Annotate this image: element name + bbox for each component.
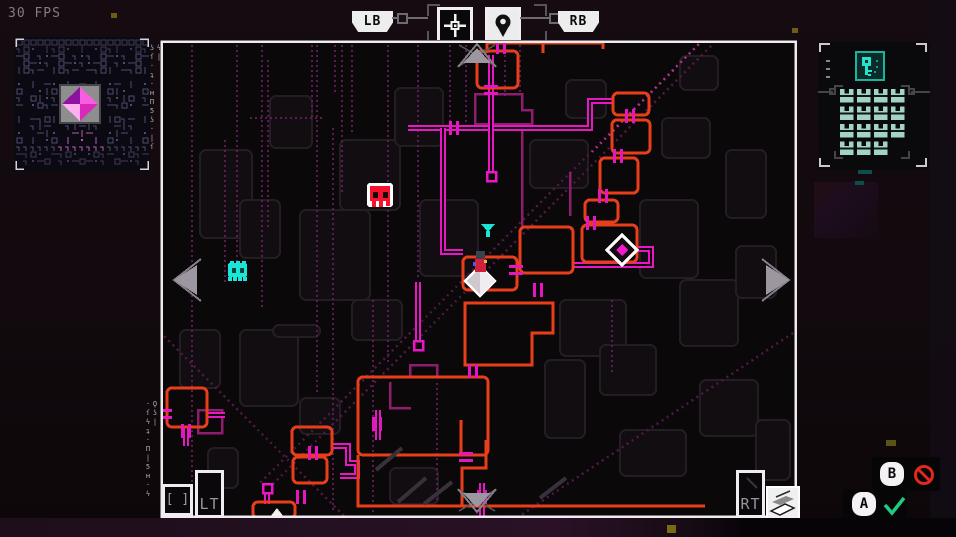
crate-icon [857, 142, 871, 156]
bg-artifact [886, 440, 896, 446]
b-button-badge[interactable]: B [880, 462, 904, 486]
bg-glitch-dash [855, 181, 864, 185]
check-icon [881, 494, 907, 518]
key-icon [856, 52, 884, 80]
glyph-column-bottom: Ϙʖ|·ſϟʇ·Π|5ʜ·ϟ [144, 400, 158, 516]
crate-icon [840, 142, 854, 156]
marker-skull [367, 183, 393, 207]
bg-glitch-dash [858, 170, 872, 174]
crate-icon [874, 89, 888, 103]
inventory-panel [818, 42, 930, 170]
no-entry-icon [912, 463, 936, 487]
layers-toggle-button[interactable] [766, 486, 800, 521]
rt-button[interactable]: RT [736, 470, 765, 518]
map-viewport[interactable] [160, 40, 797, 518]
bg-artifact [792, 28, 798, 33]
crate-icon [874, 124, 888, 138]
diamond-emblem [60, 85, 100, 123]
hud-connector-node-left [397, 13, 408, 24]
bg-artifact [111, 13, 117, 18]
left-circuit-panel [14, 37, 150, 171]
bottom-strip [0, 518, 956, 537]
tab-map-target[interactable] [437, 7, 473, 44]
bottom-strip-artifact [667, 525, 676, 533]
bracket-toggle-button[interactable]: [ ] [162, 484, 193, 516]
map-pin-icon [488, 10, 518, 41]
layers-icon [768, 488, 798, 519]
crosshair-icon [440, 10, 470, 41]
crate-icon [874, 107, 888, 121]
crate-icon [891, 124, 905, 138]
crate-icon [840, 107, 854, 121]
lt-button[interactable]: LT [195, 470, 224, 518]
crate-icon [857, 124, 871, 138]
lt-label: LT [198, 495, 221, 513]
a-button-badge[interactable]: A [852, 492, 876, 516]
bracket-icon: [ ] [166, 492, 189, 507]
fps-counter: 30 FPS [8, 6, 61, 21]
hud-connector-line-right [520, 17, 552, 19]
crate-icon [857, 89, 871, 103]
rt-slash-decor [739, 475, 762, 493]
bg-glitch-cluster [814, 182, 878, 238]
tab-map-location[interactable] [485, 7, 521, 44]
lb-button[interactable]: LB [352, 11, 393, 32]
crate-icon [874, 142, 888, 156]
crate-icon [891, 89, 905, 103]
crate-icon [891, 107, 905, 121]
rt-label: RT [739, 495, 762, 513]
game-screen: 30 FPS LB RB ϟ|ʖſ·ʇ·ʜΠ5ʖ [0, 0, 956, 537]
crate-icon [840, 89, 854, 103]
crate-icon [840, 124, 854, 138]
rb-button[interactable]: RB [558, 11, 599, 32]
crate-icon [857, 107, 871, 121]
